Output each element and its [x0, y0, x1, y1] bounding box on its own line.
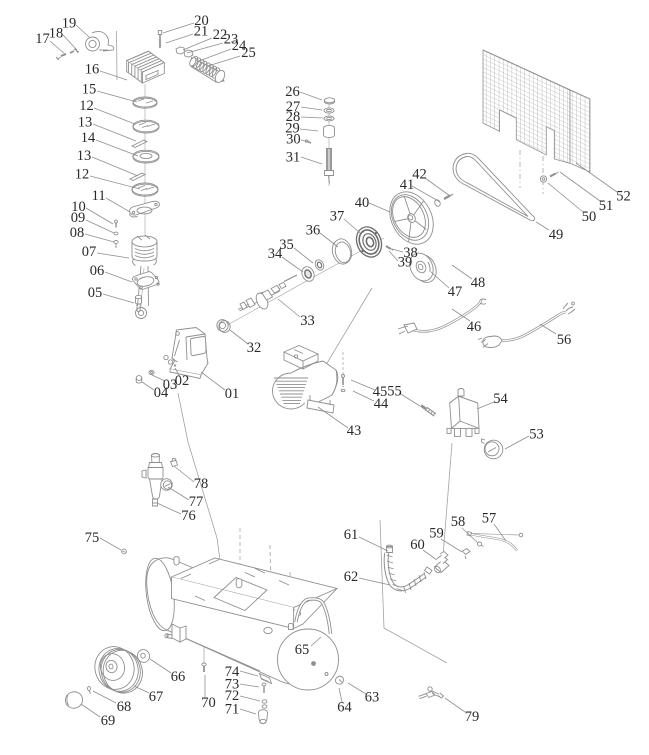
svg-text:59: 59 — [429, 526, 444, 542]
svg-text:08: 08 — [70, 225, 85, 241]
svg-text:39: 39 — [398, 255, 413, 271]
svg-text:25: 25 — [241, 45, 256, 61]
svg-text:42: 42 — [412, 167, 427, 183]
svg-text:79: 79 — [465, 709, 480, 725]
svg-text:70: 70 — [201, 695, 216, 711]
svg-text:19: 19 — [62, 16, 77, 32]
svg-text:14: 14 — [81, 130, 96, 146]
svg-text:31: 31 — [286, 150, 301, 166]
svg-text:12: 12 — [75, 167, 90, 183]
svg-text:37: 37 — [330, 209, 345, 225]
svg-text:65: 65 — [295, 642, 310, 658]
svg-text:54: 54 — [493, 391, 508, 407]
svg-text:62: 62 — [344, 569, 359, 585]
svg-text:76: 76 — [181, 508, 196, 524]
svg-text:36: 36 — [306, 223, 321, 239]
svg-text:53: 53 — [529, 427, 544, 443]
svg-text:46: 46 — [467, 319, 482, 335]
svg-text:01: 01 — [225, 386, 240, 402]
svg-text:32: 32 — [247, 340, 262, 356]
svg-text:40: 40 — [355, 195, 370, 211]
svg-text:69: 69 — [101, 713, 116, 729]
svg-text:52: 52 — [616, 189, 631, 205]
svg-text:48: 48 — [471, 275, 486, 291]
svg-text:64: 64 — [337, 700, 352, 716]
svg-text:68: 68 — [117, 699, 132, 715]
svg-text:61: 61 — [344, 527, 359, 543]
svg-text:51: 51 — [599, 198, 614, 214]
svg-text:50: 50 — [582, 209, 597, 225]
svg-text:55: 55 — [387, 384, 402, 400]
svg-text:26: 26 — [285, 84, 300, 100]
svg-text:35: 35 — [279, 237, 294, 253]
svg-text:57: 57 — [482, 511, 497, 527]
svg-text:49: 49 — [549, 227, 564, 243]
svg-text:17: 17 — [35, 31, 50, 47]
svg-text:43: 43 — [347, 423, 362, 439]
svg-text:78: 78 — [194, 476, 209, 492]
svg-text:13: 13 — [78, 115, 93, 131]
svg-text:13: 13 — [77, 148, 92, 164]
svg-text:04: 04 — [154, 385, 169, 401]
svg-text:30: 30 — [286, 132, 301, 148]
svg-text:21: 21 — [194, 24, 209, 40]
svg-text:45: 45 — [373, 384, 388, 400]
svg-text:66: 66 — [171, 669, 186, 685]
svg-text:05: 05 — [88, 285, 103, 301]
svg-text:16: 16 — [85, 62, 100, 78]
svg-text:74: 74 — [225, 664, 240, 680]
svg-text:60: 60 — [410, 537, 425, 553]
svg-text:77: 77 — [189, 494, 204, 510]
svg-text:58: 58 — [451, 514, 466, 530]
svg-text:67: 67 — [149, 689, 164, 705]
svg-text:11: 11 — [92, 188, 106, 204]
svg-text:07: 07 — [82, 244, 97, 260]
svg-text:47: 47 — [448, 284, 463, 300]
svg-text:18: 18 — [49, 26, 64, 42]
svg-text:63: 63 — [365, 690, 380, 706]
svg-text:33: 33 — [300, 313, 315, 329]
svg-text:12: 12 — [79, 98, 94, 114]
svg-text:09: 09 — [71, 210, 86, 226]
svg-text:06: 06 — [90, 263, 105, 279]
svg-text:75: 75 — [85, 530, 100, 546]
svg-text:56: 56 — [557, 332, 572, 348]
svg-text:15: 15 — [82, 82, 97, 98]
